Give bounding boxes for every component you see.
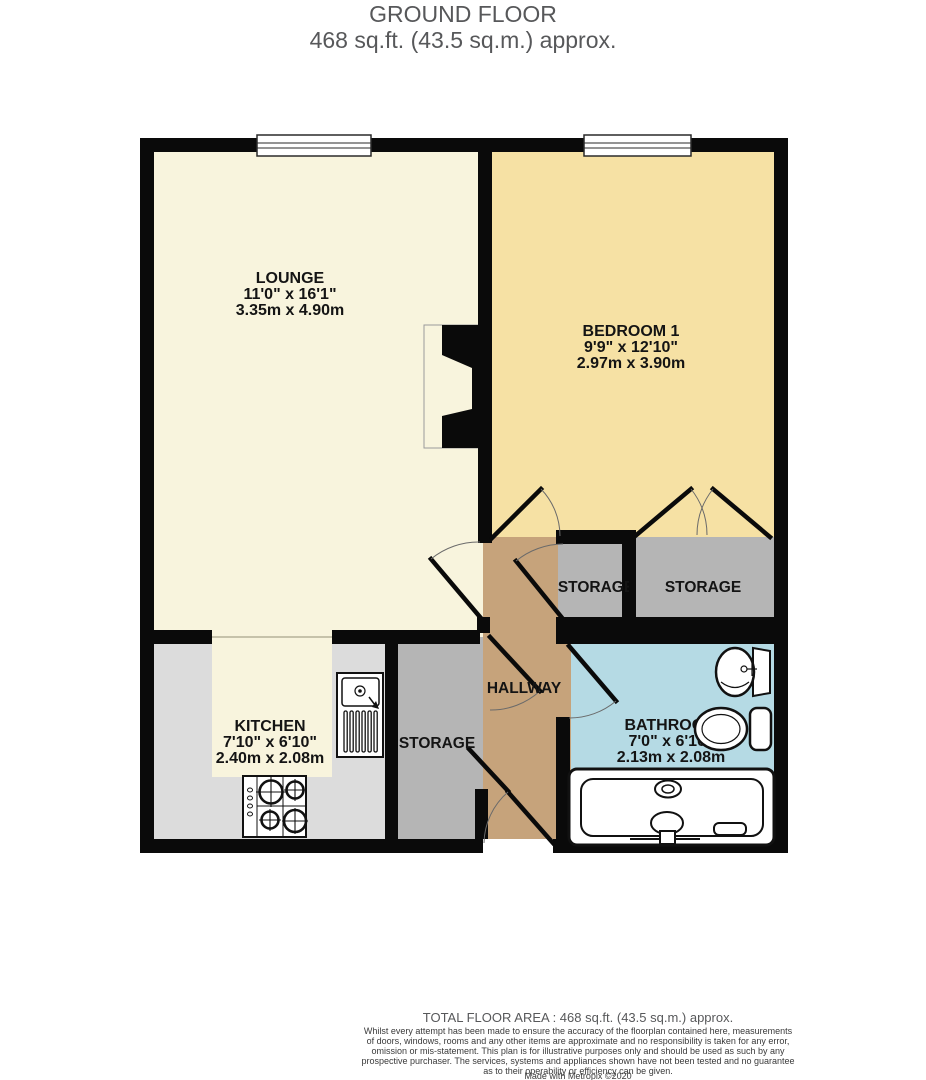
toilet-icon [695, 708, 771, 750]
svg-text:7'10" x 6'10": 7'10" x 6'10" [223, 734, 317, 751]
svg-text:3.35m x 4.90m: 3.35m x 4.90m [236, 302, 345, 319]
svg-text:LOUNGE: LOUNGE [256, 270, 325, 287]
bedroom-label: BEDROOM 1 9'9" x 12'10" 2.97m x 3.90m [577, 323, 686, 372]
hallway-label: HALLWAY [487, 680, 562, 697]
hob-icon [243, 776, 308, 837]
svg-text:of doors, windows, rooms and a: of doors, windows, rooms and any other i… [367, 1036, 790, 1046]
entry-opening [483, 839, 553, 853]
kitchen-sink-icon [337, 673, 383, 757]
svg-text:prospective purchaser. The ser: prospective purchaser. The services, sys… [361, 1056, 794, 1066]
page-subtitle: 468 sq.ft. (43.5 sq.m.) approx. [310, 27, 617, 53]
page-title: GROUND FLOOR [369, 1, 557, 27]
lounge-room [147, 145, 485, 644]
disclaimer: Whilst every attempt has been made to en… [361, 1026, 794, 1076]
svg-text:KITCHEN: KITCHEN [234, 718, 305, 735]
total-floor-area: TOTAL FLOOR AREA : 468 sq.ft. (43.5 sq.m… [423, 1010, 733, 1025]
basin-icon [716, 648, 770, 696]
svg-text:2.13m x 2.08m: 2.13m x 2.08m [617, 749, 726, 766]
bathtub-icon [569, 769, 774, 845]
storage-right-label: STORAGE [665, 579, 741, 596]
floorplan-canvas: GROUND FLOOR 468 sq.ft. (43.5 sq.m.) app… [0, 0, 926, 1080]
svg-text:omission or mis-statement. Thi: omission or mis-statement. This plan is … [371, 1046, 785, 1056]
svg-text:2.40m x 2.08m: 2.40m x 2.08m [216, 750, 325, 767]
svg-text:2.97m x 3.90m: 2.97m x 3.90m [577, 355, 686, 372]
svg-text:11'0" x 16'1": 11'0" x 16'1" [243, 286, 336, 303]
svg-text:9'9" x 12'10": 9'9" x 12'10" [584, 339, 678, 356]
svg-text:Whilst every attempt has been: Whilst every attempt has been made to en… [364, 1026, 793, 1036]
storage-middle-label: STORAGE [558, 579, 634, 596]
window-icon [257, 135, 371, 156]
svg-text:BEDROOM 1: BEDROOM 1 [583, 323, 680, 340]
credit-line: Made with Metropix ©2020 [524, 1071, 631, 1080]
storage-left-label: STORAGE [399, 735, 475, 752]
window-icon [584, 135, 691, 156]
